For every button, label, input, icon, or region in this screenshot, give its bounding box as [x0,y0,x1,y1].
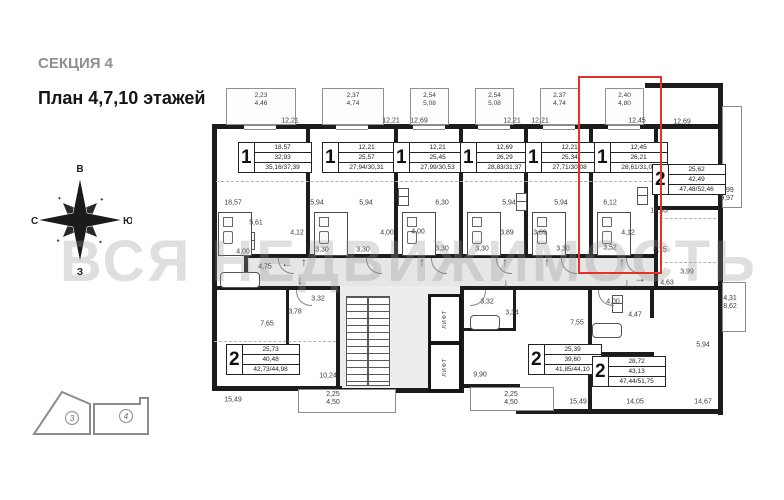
room-area-label: 9,90 [473,372,487,379]
bathtub-icon [592,323,622,338]
room-area-label: 3,32 [311,296,325,303]
apartment-label-1[interactable]: 118,5732,9335,16/37,39 [238,142,312,173]
sink-icon [223,217,233,227]
elevator-2-label: ЛИФТ [442,358,448,377]
corridor-arrow: ↑ [502,255,508,269]
balcony-area-label: 2,254,50 [504,391,518,407]
room-area-label: 3,99 [680,269,694,276]
elevator-1-label: ЛИФТ [442,310,448,329]
room-area-label: 3,30 [556,246,570,253]
apartment-areas: 28,7243,1347,44/51,75 [609,357,665,386]
room-area-label: 3,89 [533,230,547,237]
room-area-label: 12,21 [503,118,521,125]
room-area-label: 4,00 [380,230,394,237]
corridor-arrow: ↑ [301,255,307,269]
apartment-type: 2 [227,345,243,374]
room-area-label: 4,00 [606,299,620,306]
apartment-area-value: 42,49 [669,175,725,185]
room-area-label: 6,30 [435,200,449,207]
page: { "header": { "section_title": "СЕКЦИЯ 4… [0,0,784,500]
balcony-area-label: 2,37 [541,92,578,100]
room-area-label: 3,30 [475,246,489,253]
room-area-label: 3,30 [435,246,449,253]
room-area-label: 7,65 [260,321,274,328]
window-unit-1 [244,125,276,130]
apartment-areas: 25,7340,4842,73/44,98 [243,345,299,374]
balcony-area-label: 4,74 [541,100,578,108]
apartment-areas: 12,2125,4527,99/30,53 [410,143,466,172]
balcony-bottom-left [298,389,396,413]
room-area-label: 4,00 [236,249,250,256]
apartment-area-value: 32,93 [255,153,311,163]
room-area-label: 12,69 [410,118,428,125]
corridor-arrow: ↓ [624,276,630,290]
room-area-label: 5,94 [502,200,516,207]
window-unit-4 [478,125,510,130]
corridor-arrow: ↑ [544,255,550,269]
corridor-arrow: ↑ [419,255,425,269]
dashed-line-bottom-left [214,341,336,342]
apartment-area-value: 25,39 [545,345,601,355]
room-area-label: 14,67 [694,399,712,406]
dashed-line-right-2 [660,262,716,263]
apartment-label-4[interactable]: 112,6926,2928,83/31,37 [460,142,534,173]
elevator-1: ЛИФТ [428,294,462,344]
room-area-label: 3,89 [500,230,514,237]
apartment-area-value: 25,73 [243,345,299,355]
room-area-label: 4,00 [411,229,425,236]
apartment-area-value: 27,94/30,31 [339,163,395,172]
stairs [346,296,390,386]
room-area-label: 10,24 [319,373,337,380]
apartment-area-value: 25,45 [410,153,466,163]
corridor-arrow: ← [281,256,293,270]
apartment-label-7[interactable]: 225,6242,4947,48/52,46 [652,164,726,195]
room-area-label: 12,21 [382,118,400,125]
balcony-area-label: 4,74 [323,100,383,108]
wall-corridor-bottom-far-right [658,286,720,290]
door-arc [296,290,312,306]
apartment-area-value: 27,99/30,53 [410,163,466,172]
apartment-type: 1 [394,143,410,172]
toilet-icon [223,231,233,244]
apartment-type: 1 [461,143,477,172]
apartment-type: 1 [526,143,542,172]
apartment-area-value: 18,57 [255,143,311,153]
room-area-label: 15,49 [569,399,587,406]
room-area-label: 5,94 [554,200,568,207]
room-area-label: 5,94 [696,342,710,349]
room-area-label: 5,61 [249,220,263,227]
window-unit-3 [413,125,445,130]
room-area-label: 3,30 [356,247,370,254]
balcony-area-label: 5,08 [411,100,448,108]
balcony-area-label: 2,254,50 [326,391,340,407]
balcony-area-line: 9,97 [720,195,734,203]
balcony-area-line: 4,50 [504,399,518,407]
corridor-arrow: ↓ [297,273,303,287]
room-area-label: 4,63 [660,280,674,287]
balcony-area-line: 8,62 [723,303,737,311]
room-area-label: 12,21 [281,118,299,125]
sink-icon [537,217,547,227]
apartment-area-value: 12,21 [339,143,395,153]
washer-icon [516,193,527,211]
bathtub-icon [220,272,260,288]
apartment-area-value: 43,13 [609,367,665,377]
apartment-area-value: 47,44/51,75 [609,377,665,386]
apartment-label-9[interactable]: 225,3939,6041,85/44,10 [528,344,602,375]
wall-bottomleft-interior-v [286,288,289,352]
sink-icon [407,217,417,227]
apartment-type: 1 [323,143,339,172]
apartment-areas: 12,2125,5727,94/30,31 [339,143,395,172]
room-area-label: 3,30 [315,247,329,254]
balcony-area-label: 2,37 [323,92,383,100]
wall-bottomright-interior-v [650,288,654,318]
washer-icon [398,188,409,206]
room-area-label: 7,55 [570,320,584,327]
balcony-unit-2: 2,374,74 [322,88,384,125]
apartment-area-value: 28,72 [609,357,665,367]
balcony-area-line: 4,50 [326,399,340,407]
balcony-area-label: 4,318,62 [723,295,737,311]
window-unit-2 [336,125,368,130]
room-area-label: 3,32 [480,299,494,306]
sink-icon [472,217,482,227]
room-area-label: 4,75 [258,264,272,271]
sink-icon [319,217,329,227]
balcony-area-label: 2,54 [476,92,513,100]
balcony-area-label: 4,46 [227,100,295,108]
apartment-type: 2 [593,357,609,386]
window-unit-5 [543,125,575,130]
apartment-type: 2 [529,345,545,374]
apartment-area-value: 35,16/37,39 [255,163,311,172]
dashed-line-right-1 [660,218,716,219]
elevator-2: ЛИФТ [428,342,462,392]
room-area-label: 12,69 [673,119,691,126]
wall-left [212,124,217,391]
balcony-area-line: 2,25 [326,391,340,399]
apartment-label-2[interactable]: 112,2125,5727,94/30,31 [322,142,396,173]
toilet-icon [319,231,329,244]
apartment-label-8[interactable]: 225,7340,4842,73/44,98 [226,344,300,375]
room-area-label: 18,57 [224,200,242,207]
balcony-area-label: 5,08 [476,100,513,108]
room-area-label: 4,47 [628,312,642,319]
corridor-arrow: ↓ [503,276,509,290]
balcony-area-label: 2,23 [227,92,295,100]
room-area-label: 15,49 [224,397,242,404]
room-area-label: 12,21 [531,118,549,125]
apartment-type: 1 [239,143,255,172]
room-area-label: 5,94 [310,200,324,207]
apartment-areas: 25,6242,4947,48/52,46 [669,165,725,194]
apartment-label-3[interactable]: 112,2125,4527,99/30,53 [393,142,467,173]
room-area-label: 3,78 [288,309,302,316]
toilet-icon [472,231,482,244]
apartment-area-value: 12,21 [410,143,466,153]
room-area-label: 3,34 [505,310,519,317]
room-area-label: 5,94 [359,200,373,207]
apartment-area-value: 40,48 [243,355,299,365]
balcony-area-line: 4,31 [723,295,737,303]
floor-plan: ЛИФТ ЛИФТ 2,234,462,374,742,545,082,545,… [0,0,784,500]
apartment-area-value: 42,73/44,98 [243,365,299,374]
apartment-areas: 18,5732,9335,16/37,39 [255,143,311,172]
apartment-area-value: 25,62 [669,165,725,175]
highlighted-unit-outline[interactable] [578,76,662,274]
apartment-area-value: 25,57 [339,153,395,163]
balcony-area-line: 2,25 [504,391,518,399]
balcony-area-label: 2,54 [411,92,448,100]
room-area-label: 14,05 [626,399,644,406]
apartment-area-value: 47,48/52,46 [669,185,725,194]
apartment-label-10[interactable]: 228,7243,1347,44/51,75 [592,356,666,387]
room-area-label: 4,12 [290,230,304,237]
bathtub-icon [470,315,500,330]
